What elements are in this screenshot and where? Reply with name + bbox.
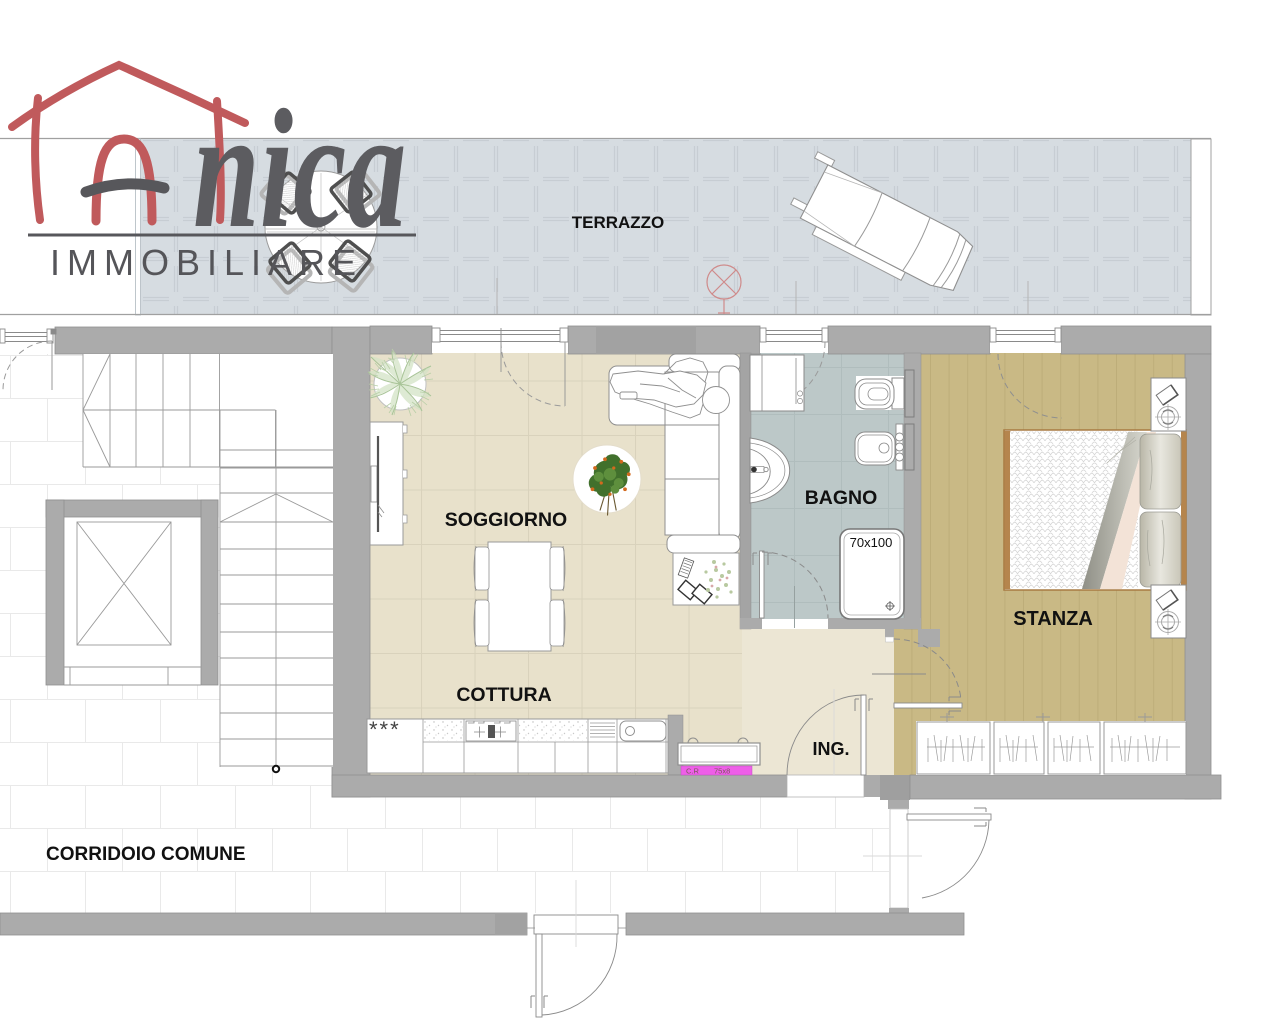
svg-text:SOGGIORNO: SOGGIORNO [445,509,567,531]
svg-text:ING.: ING. [812,739,849,759]
svg-text:70x100: 70x100 [850,535,893,550]
svg-text:BAGNO: BAGNO [805,487,878,509]
svg-text:COTTURA: COTTURA [456,684,551,706]
svg-text:***: *** [369,717,401,742]
svg-text:CORRIDOIO COMUNE: CORRIDOIO COMUNE [46,844,246,865]
svg-text:IMMOBILIARE: IMMOBILIARE [50,242,363,283]
svg-text:STANZA: STANZA [1013,608,1093,630]
svg-text:75x8: 75x8 [714,767,730,776]
svg-text:C.R: C.R [686,767,700,776]
svg-text:TERRAZZO: TERRAZZO [572,213,665,232]
